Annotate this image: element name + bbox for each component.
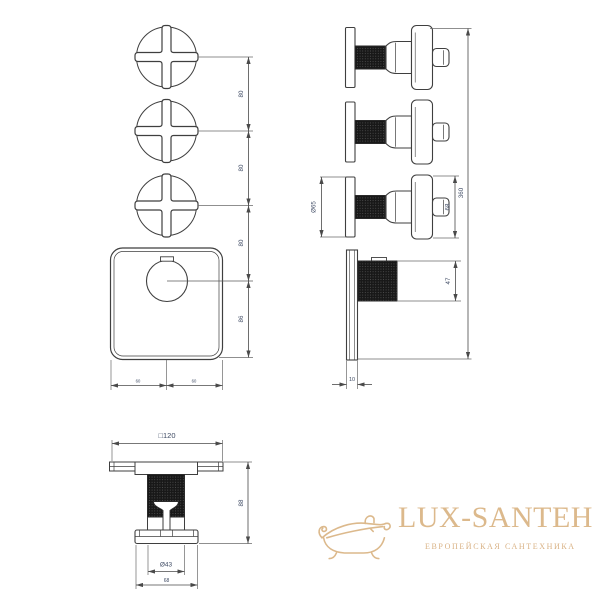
dim-knob-diameter: Ø43 [160,562,173,569]
front-handle-1 [135,26,198,89]
side-thermostat-knob [358,258,397,302]
side-view: Ø65 68 47 360 10 [311,26,472,390]
dim-overall-height: 88 [238,499,245,506]
front-bottom-dimension: 60 60 [111,360,223,390]
dim-front-spacing-3: 80 [238,239,245,246]
side-handle-2 [346,100,450,164]
dim-rosette-diameter: Ø65 [311,201,318,213]
bottom-handle [135,475,198,544]
side-dim-plate-thickness: 10 [332,361,372,389]
dim-handle-width: 68 [164,578,170,584]
side-handle-1 [346,26,450,90]
bottom-dim-square: □120 [112,431,223,461]
watermark-brand: LUX-SANTEH [398,502,598,534]
side-plate-edge [347,250,358,360]
dim-plate-thickness: 10 [349,377,355,383]
side-handle-3 [346,175,450,239]
dim-front-knob-offset: 86 [238,315,245,322]
dim-total-height: 360 [458,187,465,198]
side-dim-rosette: Ø65 [311,177,347,237]
dim-front-spacing-1: 80 [238,90,245,97]
bottom-view: □120 88 [110,431,253,589]
front-view: 80 80 80 86 60 60 [111,26,254,391]
dim-knob-depth: 47 [445,277,452,284]
front-handle-2 [135,100,198,163]
bottom-dim-knob-diameter: Ø43 [148,545,185,575]
watermark: LUX-SANTEH ЕВРОПЕЙСКАЯ САНТЕХНИКА [308,496,600,580]
dim-handle-length: 68 [445,203,452,210]
bottom-plate-edge [110,462,224,475]
dim-front-spacing-2: 80 [238,164,245,171]
dim-front-bottom-right: 60 [192,379,197,384]
dim-plate-square: □120 [158,431,175,440]
bottom-dim-height: 88 [199,462,252,544]
front-handle-3 [135,174,198,237]
dim-front-bottom-left: 60 [136,379,141,384]
side-dim-knob-depth: 47 [397,261,461,301]
bathtub-icon [314,504,394,562]
watermark-tagline: ЕВРОПЕЙСКАЯ САНТЕХНИКА [425,542,600,551]
